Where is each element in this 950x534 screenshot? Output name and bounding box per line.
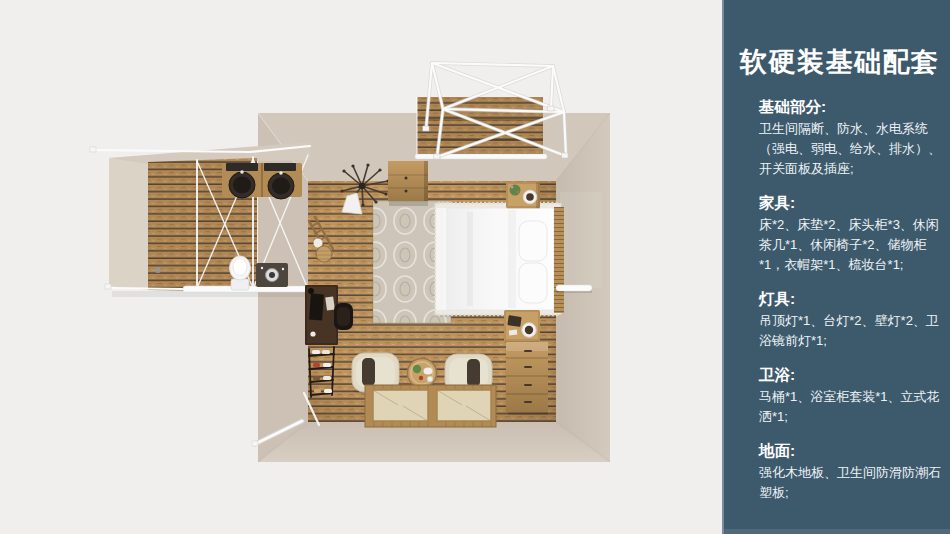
nightstand-bottom [504, 310, 540, 343]
double-bed [435, 203, 564, 317]
spec-sections: 基础部分: 卫生间隔断、防水、水电系统（强电、弱电、给水、排水）、开关面板及插座… [759, 97, 943, 517]
dresser [506, 342, 548, 415]
shower-drain [155, 267, 161, 273]
section-body: 强化木地板、卫生间防滑防潮石塑板; [759, 463, 943, 503]
bathroom-cabinet [256, 263, 288, 287]
spec-section-bath: 卫浴: 马桶*1、浴室柜套装*1、立式花洒*1; [759, 365, 943, 427]
spec-panel: 软硬装基础配套 基础部分: 卫生间隔断、防水、水电系统（强电、弱电、给水、排水）… [722, 0, 950, 534]
spec-section-lighting: 灯具: 吊顶灯*1、台灯*2、壁灯*2、卫浴镜前灯*1; [759, 289, 943, 351]
mirror-left [226, 163, 258, 171]
panel-footer-strip [724, 529, 950, 534]
section-body: 卫生间隔断、防水、水电系统（强电、弱电、给水、排水）、开关面板及插座; [759, 119, 943, 179]
bathroom-left-wall [107, 158, 148, 290]
spec-section-furniture: 家具: 床*2、床垫*2、床头柜*3、休闲茶几*1、休闲椅子*2、储物柜*1，衣… [759, 193, 943, 275]
headboard [554, 207, 564, 313]
nightstand-top [506, 182, 540, 209]
toilet [229, 256, 251, 290]
pillow [519, 221, 547, 261]
section-heading: 家具: [759, 193, 943, 213]
section-heading: 基础部分: [759, 97, 943, 117]
storage-cabinet [388, 161, 428, 206]
section-body: 吊顶灯*1、台灯*2、壁灯*2、卫浴镜前灯*1; [759, 311, 943, 351]
spec-section-basics: 基础部分: 卫生间隔断、防水、水电系统（强电、弱电、给水、排水）、开关面板及插座… [759, 97, 943, 179]
chair-cushion [467, 359, 480, 387]
double-sink-vanity [222, 163, 302, 199]
mug [310, 331, 315, 336]
section-body: 马桶*1、浴室柜套装*1、立式花洒*1; [759, 387, 943, 427]
table-plant [413, 365, 421, 373]
floor-mattresses [365, 385, 496, 427]
spec-section-floor: 地面: 强化木地板、卫生间防滑防潮石塑板; [759, 441, 943, 503]
desk-lamp [308, 288, 314, 294]
basket [316, 246, 332, 262]
chair-cushion [362, 358, 375, 386]
section-heading: 灯具: [759, 289, 943, 309]
mirror-right [264, 163, 296, 171]
room-render [0, 0, 722, 534]
section-heading: 地面: [759, 441, 943, 461]
panel-title: 软硬装基础配套 [740, 44, 946, 80]
right-wall-door-panel [560, 192, 602, 288]
desk-chair [334, 303, 353, 330]
room-render-area [0, 0, 722, 534]
right-wall-rail [556, 285, 592, 291]
laptop [309, 294, 324, 321]
section-body: 床*2、床垫*2、床头柜*3、休闲茶几*1、休闲椅子*2、储物柜*1，衣帽架*1… [759, 215, 943, 275]
desk [305, 285, 338, 345]
pillow [519, 263, 547, 303]
section-heading: 卫浴: [759, 365, 943, 385]
